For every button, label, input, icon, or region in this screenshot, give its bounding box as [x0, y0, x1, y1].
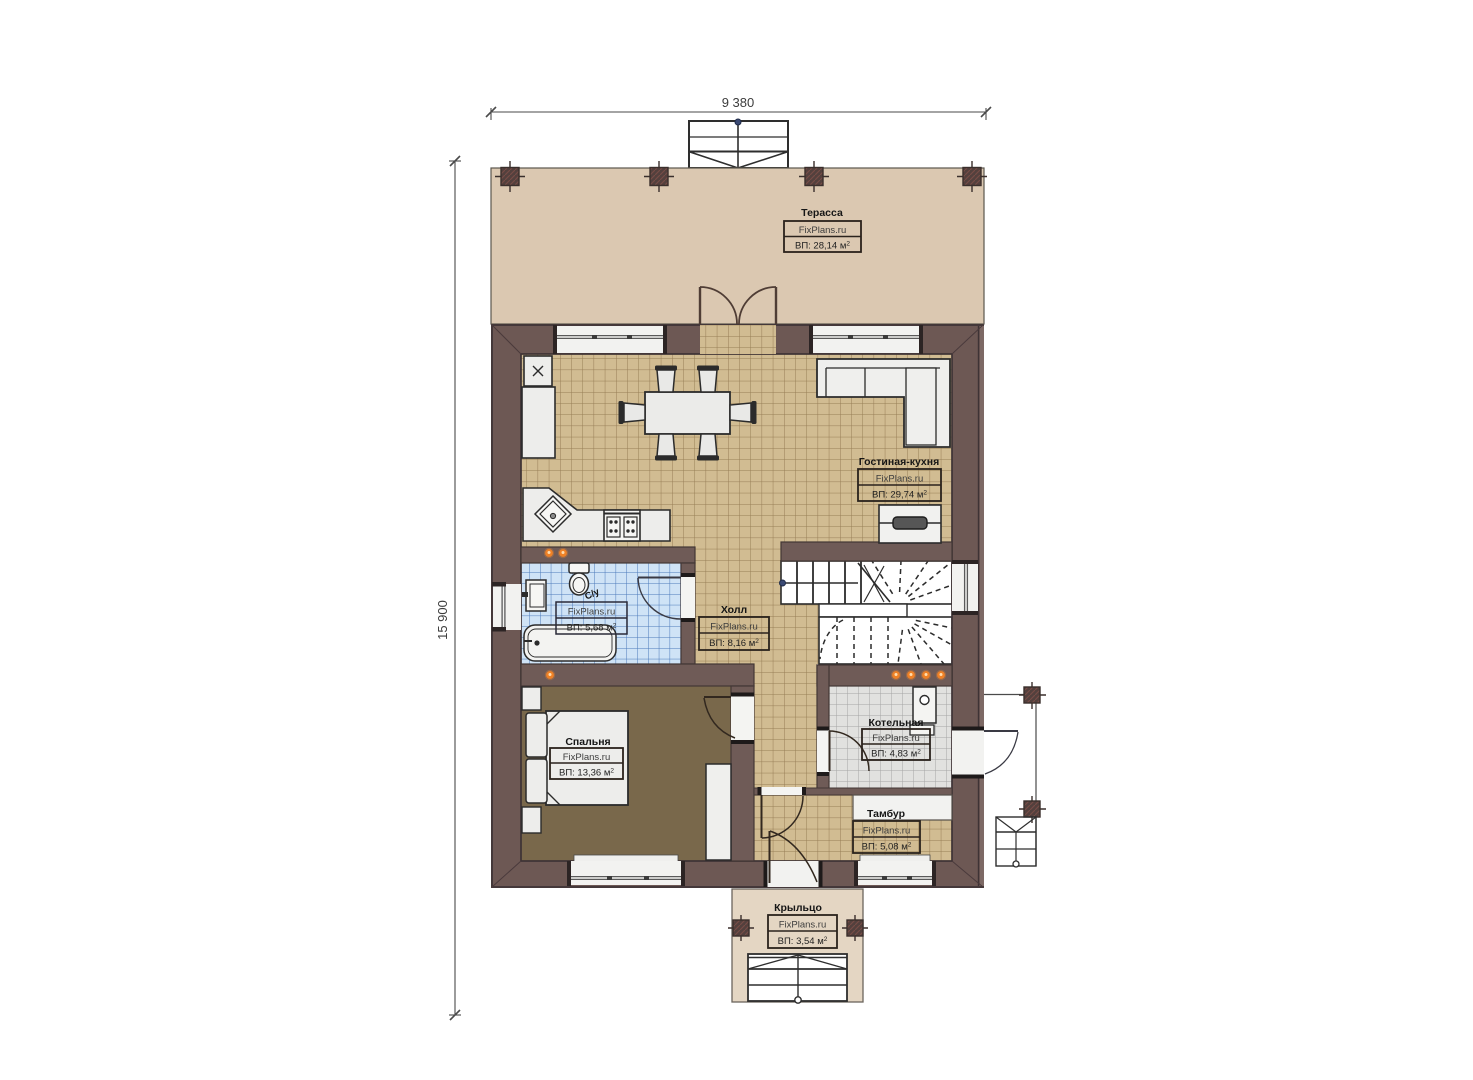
svg-text:FixPlans.ru: FixPlans.ru	[568, 607, 616, 618]
svg-text:ВП: 5,08 м2: ВП: 5,08 м2	[862, 842, 912, 853]
svg-text:15 900: 15 900	[435, 600, 450, 640]
svg-text:Спальня: Спальня	[565, 736, 610, 748]
svg-text:FixPlans.ru: FixPlans.ru	[779, 920, 827, 931]
svg-text:ВП: 3,54 м2: ВП: 3,54 м2	[778, 936, 828, 947]
svg-text:9 380: 9 380	[722, 95, 755, 110]
svg-text:FixPlans.ru: FixPlans.ru	[872, 733, 920, 744]
svg-text:ВП: 29,74 м2: ВП: 29,74 м2	[872, 490, 927, 501]
svg-text:ВП: 4,83 м2: ВП: 4,83 м2	[871, 749, 921, 760]
svg-text:ВП: 8,16 м2: ВП: 8,16 м2	[709, 638, 759, 649]
svg-text:FixPlans.ru: FixPlans.ru	[563, 752, 611, 763]
svg-text:ВП: 13,36 м2: ВП: 13,36 м2	[559, 768, 614, 779]
svg-text:Холл: Холл	[721, 604, 747, 616]
svg-text:Крыльцо: Крыльцо	[774, 902, 822, 914]
svg-text:Гостиная-кухня: Гостиная-кухня	[859, 456, 939, 468]
svg-text:FixPlans.ru: FixPlans.ru	[863, 826, 911, 837]
svg-text:FixPlans.ru: FixPlans.ru	[799, 225, 847, 236]
svg-text:Тамбур: Тамбур	[867, 808, 905, 820]
svg-text:ВП: 5,68 м2: ВП: 5,68 м2	[567, 623, 617, 634]
svg-text:ВП: 28,14 м2: ВП: 28,14 м2	[795, 241, 850, 252]
svg-text:FixPlans.ru: FixPlans.ru	[710, 622, 758, 633]
svg-text:FixPlans.ru: FixPlans.ru	[876, 474, 924, 485]
svg-text:Котельная: Котельная	[869, 717, 924, 729]
svg-text:Терасса: Терасса	[801, 207, 843, 219]
